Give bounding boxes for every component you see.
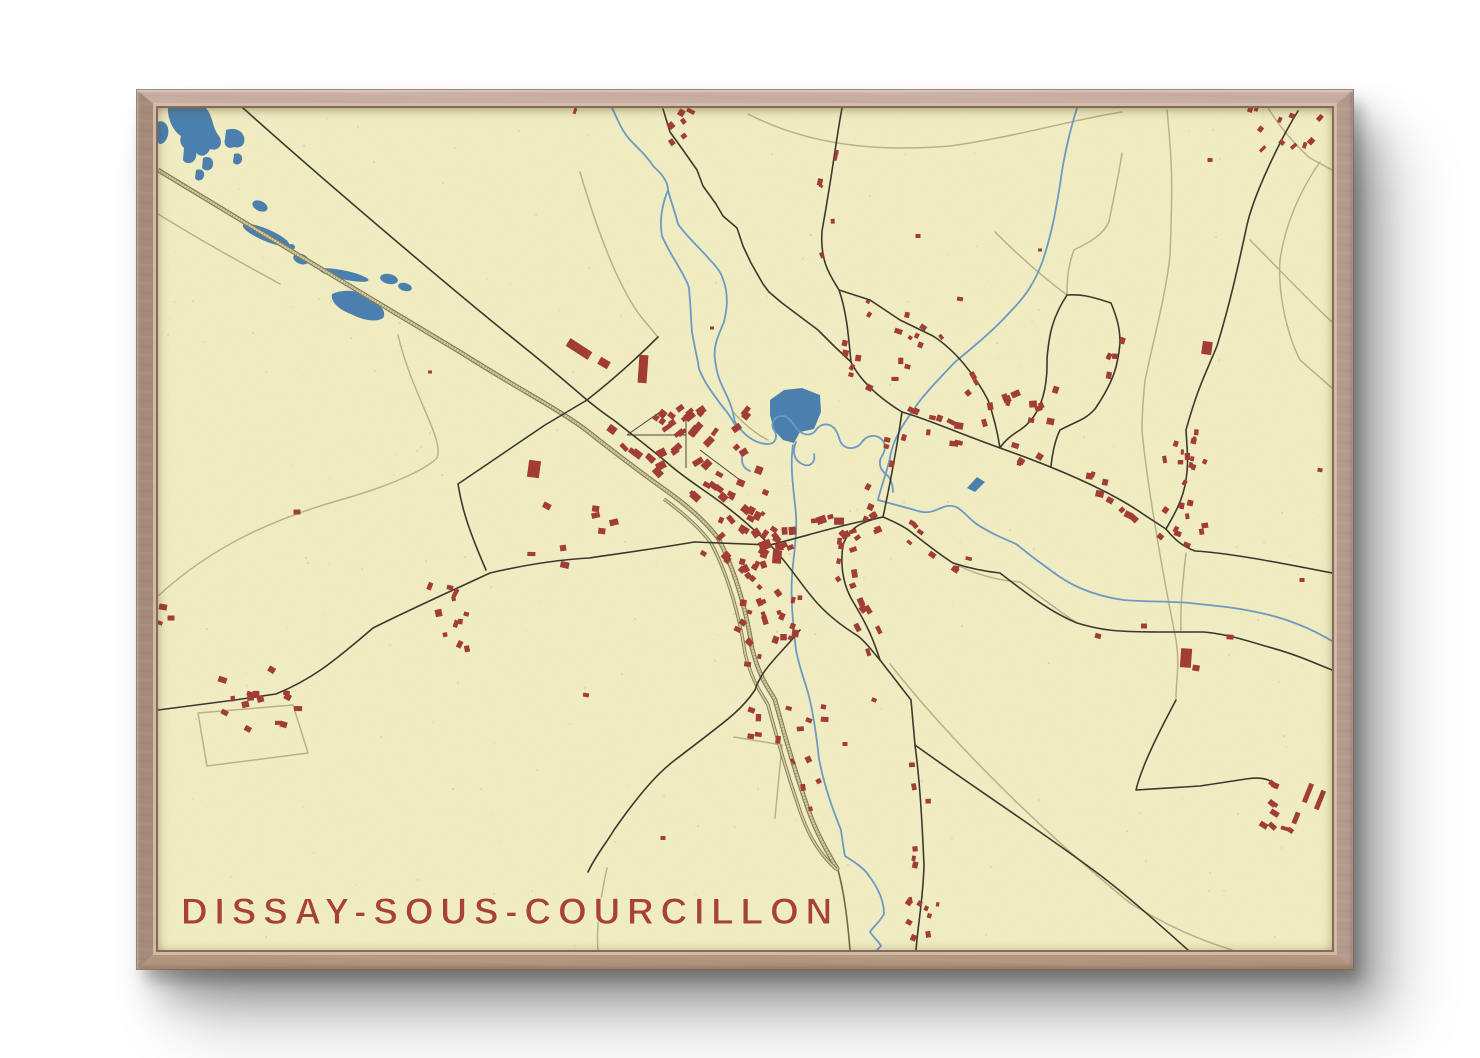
svg-text:DISSAY-SOUS-COURCILLON: DISSAY-SOUS-COURCILLON [181,891,839,932]
